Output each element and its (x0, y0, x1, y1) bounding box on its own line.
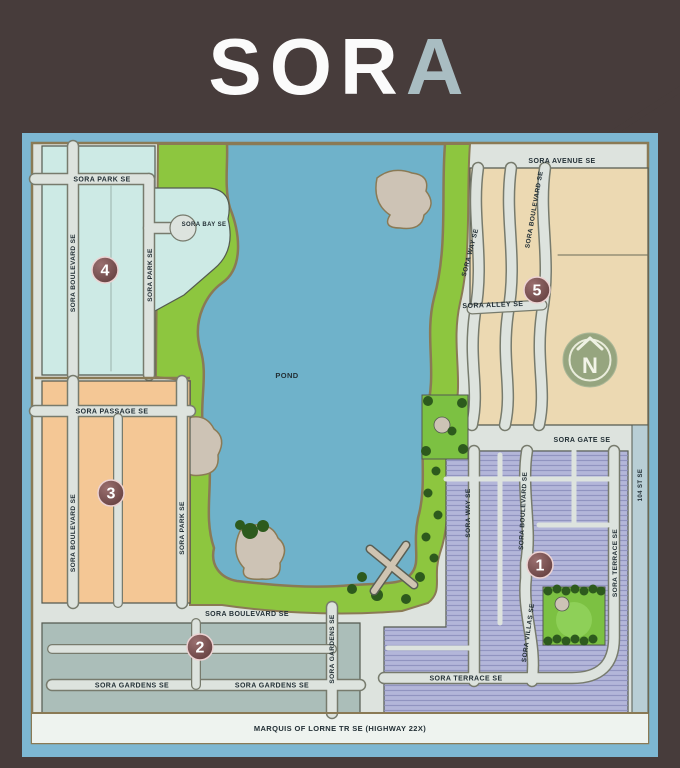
street-label-sora-way-1: SORA WAY SE (465, 488, 472, 538)
logo-text-accent: A (406, 22, 472, 111)
street-label-sora-park-v: SORA PARK SE (147, 248, 154, 302)
phase-2-number: 2 (196, 640, 205, 657)
street-label-sora-passage: SORA PASSAGE SE (76, 409, 149, 416)
sora-logo: SORA (208, 27, 471, 107)
street-label-sora-boulevard-3: SORA BOULEVARD SE (70, 494, 77, 573)
street-label-sora-boulevard-4: SORA BOULEVARD SE (70, 234, 77, 313)
logo-text-main: SOR (208, 22, 405, 111)
phase-5-area (470, 168, 648, 425)
phase-3-badge: 3 (98, 480, 124, 506)
logo-slash-decoration (608, 45, 680, 137)
villas-park (543, 585, 606, 646)
street-label-sora-bay: SORA BAY SE (182, 222, 227, 228)
street-label-sora-terrace-horiz: SORA TERRACE SE (429, 676, 502, 683)
street-label-sora-boulevard-2: SORA BOULEVARD SE (205, 611, 289, 618)
street-label-sora-avenue: SORA AVENUE SE (528, 158, 595, 165)
street-label-sora-gardens-right: SORA GARDENS SE (235, 683, 309, 690)
logo-band: SORA (0, 0, 680, 133)
street-label-sora-gate: SORA GATE SE (554, 437, 611, 444)
map-svg: POND SORA PARK SE SORA BOULEVARD SE SORA… (22, 133, 658, 757)
highway-label: MARQUIS OF LORNE TR SE (HIGHWAY 22X) (254, 724, 426, 733)
phase-5-badge: 5 (524, 277, 550, 303)
phase-4-number: 4 (101, 263, 110, 280)
street-label-sora-gardens-vert: SORA GARDENS SE (329, 614, 336, 684)
street-label-sora-terrace-vert: SORA TERRACE SE (612, 529, 619, 598)
north-label: N (582, 353, 598, 378)
phase-1-number: 1 (536, 558, 545, 575)
street-104-strip (632, 425, 648, 713)
phase-5-number: 5 (533, 283, 542, 300)
community-map: POND SORA PARK SE SORA BOULEVARD SE SORA… (22, 133, 658, 757)
phase-3-number: 3 (107, 486, 116, 503)
phase-4-badge: 4 (92, 257, 118, 283)
north-arrow-icon: N (563, 333, 617, 387)
street-label-sora-park-h: SORA PARK SE (73, 177, 130, 184)
street-label-sora-gardens-left: SORA GARDENS SE (95, 683, 169, 690)
upper-park (421, 395, 468, 459)
phase-2-badge: 2 (187, 634, 213, 660)
street-label-104-st: 104 ST SE (638, 469, 644, 502)
phase-1-badge: 1 (527, 552, 553, 578)
street-label-sora-park-3: SORA PARK SE (179, 501, 186, 555)
pond-label: POND (275, 371, 298, 380)
